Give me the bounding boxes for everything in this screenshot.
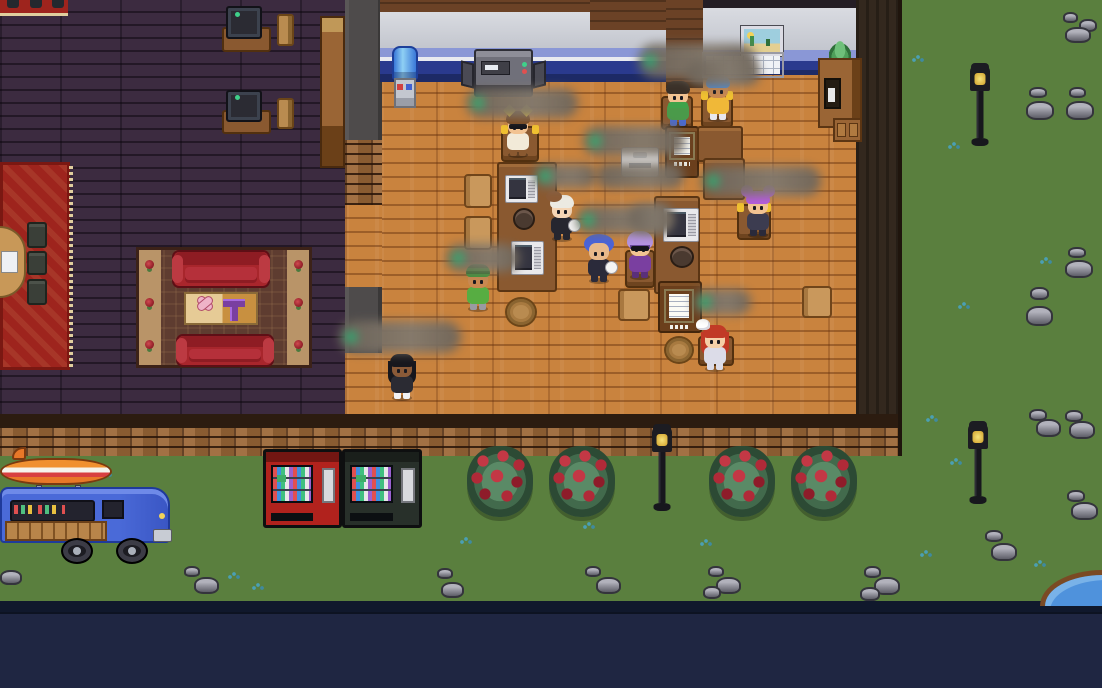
red-couch [172, 250, 270, 288]
rock [1029, 87, 1047, 98]
blurred-nametag [686, 60, 760, 86]
blurred-nametag [466, 88, 578, 118]
rock [708, 566, 724, 577]
rock [991, 543, 1017, 561]
blurred-nametag [693, 289, 751, 315]
grass-tuft [1040, 257, 1052, 264]
lamp-post [648, 427, 676, 511]
rose-bush [709, 446, 775, 517]
rock [437, 568, 453, 579]
rock [1063, 12, 1078, 23]
vending-machine [342, 449, 422, 528]
rock [1069, 87, 1086, 98]
grass-tuft [252, 583, 264, 590]
blurred-nametag [339, 321, 461, 353]
rock [1065, 260, 1093, 278]
grass-tuft [912, 55, 924, 62]
blurred-nametag [596, 163, 684, 189]
rose-bush [791, 446, 857, 517]
player-character[interactable] [701, 324, 729, 372]
grass-tuft [228, 572, 240, 579]
surf-truck [0, 448, 170, 564]
rug [0, 0, 68, 16]
vending-machine [263, 449, 342, 528]
player-character[interactable] [585, 236, 613, 284]
player-character[interactable] [626, 232, 654, 280]
water-cooler [391, 46, 419, 108]
interior-wall [345, 0, 382, 140]
workstation-desk [222, 90, 294, 134]
rock [1067, 490, 1085, 502]
workstation-desk [222, 6, 294, 52]
wooden-chair [618, 289, 650, 321]
player-character[interactable] [664, 80, 692, 128]
player-character[interactable] [744, 190, 772, 238]
building-south-base [0, 414, 898, 428]
gather-app-window: 쑤 Online [0, 0, 1102, 688]
grass-tuft [700, 539, 712, 546]
rock [1066, 101, 1094, 120]
rattan-chair [664, 336, 694, 364]
rock [596, 577, 621, 594]
building-east-wall [856, 0, 898, 414]
rock [194, 577, 219, 594]
grass-tuft [1034, 560, 1046, 567]
blurred-nametag [446, 244, 520, 272]
wall-top-line [703, 0, 856, 8]
office-desk [697, 126, 743, 162]
bookshelf [320, 16, 345, 168]
paper-sign [664, 289, 694, 323]
doorway-floor [345, 205, 382, 287]
rock [441, 582, 464, 598]
map-bottom-edge [0, 601, 1102, 612]
wooden-chair [464, 174, 492, 208]
stool [670, 246, 694, 268]
grass-tuft [958, 302, 970, 309]
grass-tuft [948, 142, 960, 149]
rock [1026, 101, 1054, 120]
rock [585, 566, 601, 577]
grass-tuft [460, 537, 472, 544]
rock [1068, 247, 1086, 258]
chair [27, 279, 47, 305]
rattan-chair [505, 297, 537, 327]
game-world-viewport[interactable] [0, 0, 1102, 612]
rock [1036, 419, 1061, 437]
player-character[interactable] [388, 353, 416, 401]
blurred-nametag [583, 126, 685, 156]
rock [1030, 287, 1049, 300]
rock [860, 587, 880, 601]
interior-brick-column [345, 140, 382, 205]
lamp-post [966, 66, 994, 146]
grass-tuft [950, 458, 962, 465]
rock [985, 530, 1003, 542]
rock [1071, 502, 1098, 520]
grass-tuft [583, 522, 595, 529]
rock [1026, 306, 1053, 326]
player-character[interactable] [548, 194, 576, 242]
chair [27, 222, 47, 248]
blurred-nametag [533, 164, 597, 188]
chair [27, 251, 47, 275]
stool [513, 208, 535, 230]
grass-tuft [926, 415, 938, 422]
grass-tuft [920, 550, 932, 557]
rock [864, 566, 881, 578]
cabinet [833, 118, 862, 142]
rose-bush [467, 446, 533, 517]
red-couch [176, 334, 274, 367]
rock [1069, 421, 1095, 439]
blurred-nametag [628, 204, 674, 232]
blurred-nametag [701, 166, 821, 196]
rock [703, 586, 721, 599]
rose-bush [549, 446, 615, 517]
coffee-table [184, 292, 258, 325]
wooden-chair [802, 286, 832, 318]
control-toolbar: 쑤 Online [0, 612, 1102, 688]
rock [0, 570, 22, 585]
rock [184, 566, 200, 577]
lamp-post [964, 424, 992, 504]
rock [1065, 27, 1091, 43]
doorway-floor [345, 353, 382, 414]
